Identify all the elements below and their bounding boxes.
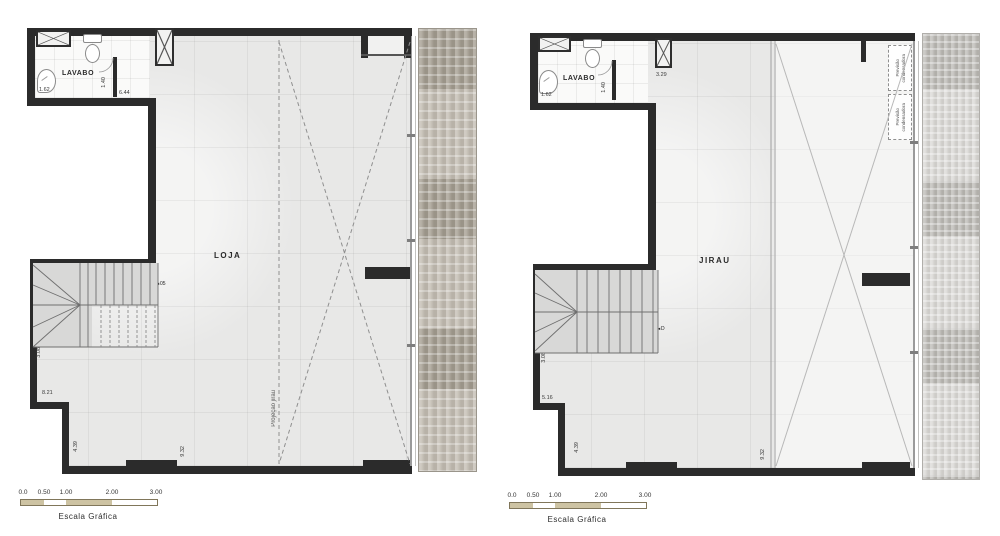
floor-plan-sheet: LAVABO LOJA 1.62 1.40 6.44 3.08 8.21 4.3… — [0, 0, 1000, 536]
glass-mullion — [910, 351, 918, 354]
threshold-1 — [626, 462, 677, 468]
tick-label: 0.0 — [507, 492, 516, 499]
scale-bar-tick-labels: 0.0 0.50 1.00 2.00 3.00 — [509, 492, 659, 500]
wall-mid-vertical — [648, 103, 656, 270]
sidewalk-pavers — [922, 33, 980, 480]
stair-direction-marker: ◄D — [657, 326, 665, 332]
scale-bar-loja: 0.0 0.50 1.00 2.00 3.00 Escala Gráfica — [20, 489, 170, 521]
lavabo-label: LAVABO — [563, 75, 595, 82]
wall-jog-vertical — [558, 403, 565, 470]
storefront-outer-line — [918, 41, 919, 468]
jirau-notch-outside-2 — [500, 410, 558, 477]
storefront-pier — [862, 273, 910, 286]
glass-mullion — [910, 246, 918, 249]
tick-label: 0.0 — [18, 489, 27, 496]
threshold-2 — [862, 462, 910, 468]
scale-bar-title: Escala Gráfica — [20, 512, 156, 521]
dim-sink: 1.62 — [541, 92, 552, 98]
sink-icon — [539, 70, 558, 94]
wall-bottom — [558, 468, 915, 476]
scale-bar-segments — [20, 499, 158, 506]
scale-bar-jirau: 0.0 0.50 1.00 2.00 3.00 Escala Gráfica — [509, 492, 659, 524]
vent-shaft-icon — [655, 38, 672, 68]
dim-bottom-right: 9.32 — [760, 449, 766, 460]
dim-wall-left: 5.16 — [542, 395, 553, 401]
scale-bar-title: Escala Gráfica — [509, 515, 645, 524]
tick-label: 0.50 — [527, 492, 540, 499]
tick-label: 2.00 — [106, 489, 119, 496]
wall-stub — [861, 41, 866, 62]
dim-door: 1.40 — [601, 82, 607, 93]
condenser-provision-box: Previsãocondensadora — [888, 45, 912, 91]
wall-left-lower — [533, 264, 540, 410]
lavabo-door-wall — [612, 60, 616, 100]
scale-bar-tick-labels: 0.0 0.50 1.00 2.00 3.00 — [20, 489, 170, 497]
vent-shaft-icon — [538, 36, 571, 52]
plan-jirau: Previsãocondensadora Previsãocondensador… — [0, 0, 1000, 536]
tick-label: 3.00 — [150, 489, 163, 496]
wall-stair-top — [533, 264, 656, 270]
toilet-icon — [583, 39, 602, 69]
tick-label: 1.00 — [549, 492, 562, 499]
scale-bar-segments — [509, 502, 647, 509]
tick-label: 3.00 — [639, 492, 652, 499]
wall-left-upper — [530, 33, 538, 110]
jirau-label: JIRAU — [699, 256, 731, 265]
storefront-glass — [913, 41, 915, 468]
dim-stair: 3.08 — [541, 352, 547, 363]
glass-mullion — [910, 141, 918, 144]
wall-lavabo-bottom — [530, 103, 655, 110]
condenser-provision-box: Previsãocondensadora — [888, 94, 912, 140]
tick-label: 1.00 — [60, 489, 73, 496]
jirau-notch-outside — [500, 110, 648, 264]
dim-bottom-left: 4.39 — [574, 442, 580, 453]
dim-shaft: 3.29 — [656, 72, 667, 78]
tick-label: 2.00 — [595, 492, 608, 499]
tick-label: 0.50 — [38, 489, 51, 496]
